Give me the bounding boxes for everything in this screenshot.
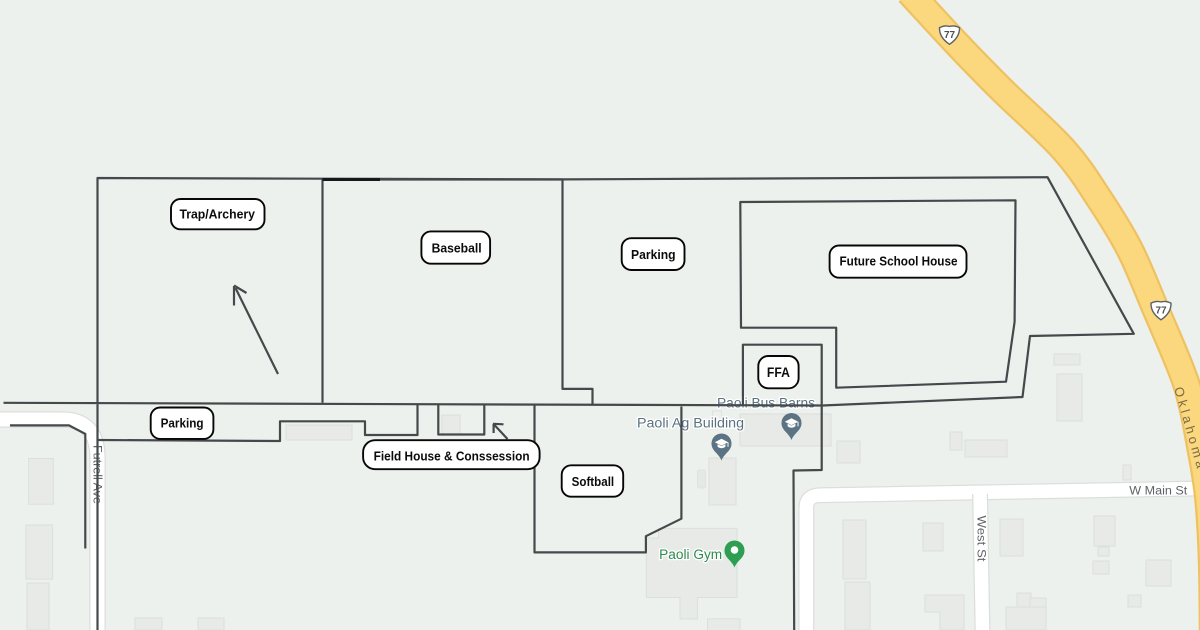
svg-text:77: 77 bbox=[1155, 305, 1167, 316]
svg-text:Parking: Parking bbox=[631, 247, 676, 262]
svg-text:FFA: FFA bbox=[767, 364, 790, 380]
svg-text:77: 77 bbox=[944, 30, 956, 41]
svg-text:Field House & Conssession: Field House & Conssession bbox=[374, 449, 530, 464]
svg-text:Trap/Archery: Trap/Archery bbox=[179, 207, 255, 222]
svg-text:Future School House: Future School House bbox=[840, 254, 958, 269]
svg-text:W Main St: W Main St bbox=[1129, 486, 1188, 498]
svg-text:Paoli Gym: Paoli Gym bbox=[659, 547, 722, 562]
svg-text:West St: West St bbox=[975, 516, 987, 563]
svg-text:Parking: Parking bbox=[161, 416, 204, 431]
svg-text:Softball: Softball bbox=[572, 474, 615, 489]
svg-text:Paoli Bus Barns: Paoli Bus Barns bbox=[717, 395, 815, 410]
svg-text:Paoli Ag Building: Paoli Ag Building bbox=[637, 415, 744, 430]
svg-text:Baseball: Baseball bbox=[432, 240, 482, 255]
